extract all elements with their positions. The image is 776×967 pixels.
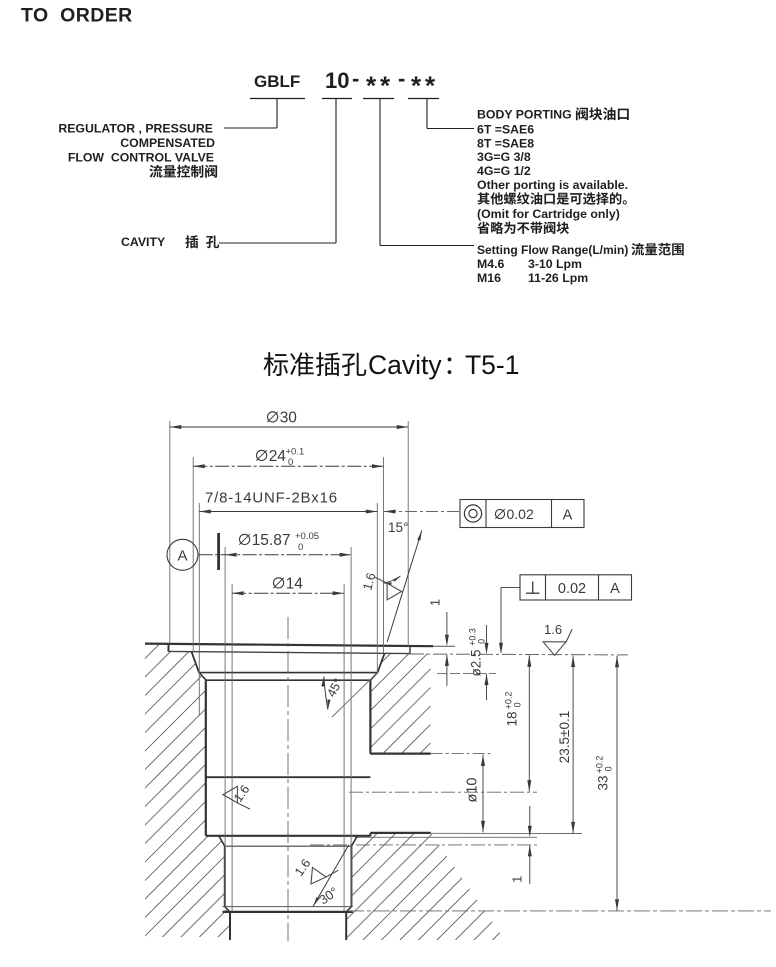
svg-text:0: 0	[288, 457, 293, 468]
svg-text:1: 1	[428, 599, 443, 606]
svg-text:15°: 15°	[388, 520, 408, 535]
svg-text:33: 33	[596, 775, 611, 790]
svg-text:ø2.5: ø2.5	[469, 649, 484, 676]
svg-text:Setting Flow Range(L/min): Setting Flow Range(L/min)	[477, 243, 628, 257]
svg-text:7/8-14UNF-2Bx16: 7/8-14UNF-2Bx16	[205, 490, 338, 507]
svg-text:14: 14	[286, 576, 304, 593]
svg-text:TO ORDER: TO ORDER	[21, 5, 133, 27]
svg-text:6T =SAE6: 6T =SAE6	[477, 123, 534, 137]
svg-text:0: 0	[513, 702, 523, 707]
svg-text:(Omit for Cartridge only): (Omit for Cartridge only)	[477, 207, 620, 221]
svg-text:30: 30	[280, 410, 298, 427]
svg-text:A: A	[563, 508, 573, 524]
svg-text:23.5±0.1: 23.5±0.1	[557, 711, 572, 763]
svg-text:M16: M16	[477, 271, 501, 285]
svg-text:REGULATOR , PRESSURE: REGULATOR , PRESSURE	[58, 122, 213, 136]
svg-text:*: *	[411, 71, 422, 101]
svg-text:18: 18	[505, 711, 520, 726]
svg-text:3-10 Lpm: 3-10 Lpm	[528, 257, 582, 271]
svg-text:ø10: ø10	[465, 778, 481, 803]
svg-text:8T =SAE8: 8T =SAE8	[477, 137, 534, 151]
svg-text:Other porting is available.: Other porting is available.	[477, 178, 628, 192]
svg-text:COMPENSATED: COMPENSATED	[120, 136, 215, 150]
svg-text:0: 0	[298, 542, 303, 553]
svg-text:A: A	[177, 547, 187, 564]
svg-text:+0.1: +0.1	[286, 447, 305, 458]
svg-text:3G=G 3/8: 3G=G 3/8	[477, 150, 531, 164]
svg-text:A: A	[610, 581, 620, 597]
svg-text:M4.6: M4.6	[477, 257, 504, 271]
svg-text:FLOW CONTROL VALVE: FLOW CONTROL VALVE	[68, 151, 214, 165]
svg-text:11-26 Lpm: 11-26 Lpm	[528, 271, 588, 285]
svg-text:24: 24	[269, 448, 287, 465]
svg-text:T5-1: T5-1	[465, 350, 520, 380]
svg-text:0.02: 0.02	[507, 506, 534, 522]
svg-text:CAVITY: CAVITY	[121, 235, 165, 249]
svg-text:-: -	[352, 66, 359, 91]
svg-text:10: 10	[325, 68, 349, 93]
svg-text:15.87: 15.87	[252, 532, 291, 549]
svg-text:BODY PORTING: BODY PORTING	[477, 108, 572, 122]
svg-text:-: -	[398, 66, 405, 91]
svg-text:0: 0	[477, 639, 487, 644]
svg-text:GBLF: GBLF	[254, 72, 300, 91]
svg-text:+0.05: +0.05	[295, 531, 319, 542]
svg-text:*: *	[380, 71, 391, 101]
svg-text:*: *	[366, 71, 377, 101]
svg-text:0: 0	[604, 766, 614, 771]
svg-text:1: 1	[510, 876, 525, 883]
svg-text:0.02: 0.02	[558, 581, 586, 597]
svg-text:*: *	[425, 71, 436, 101]
svg-text:4G=G 1/2: 4G=G 1/2	[477, 164, 531, 178]
svg-text:Cavity: Cavity	[368, 350, 442, 380]
svg-text:1.6: 1.6	[544, 622, 562, 637]
